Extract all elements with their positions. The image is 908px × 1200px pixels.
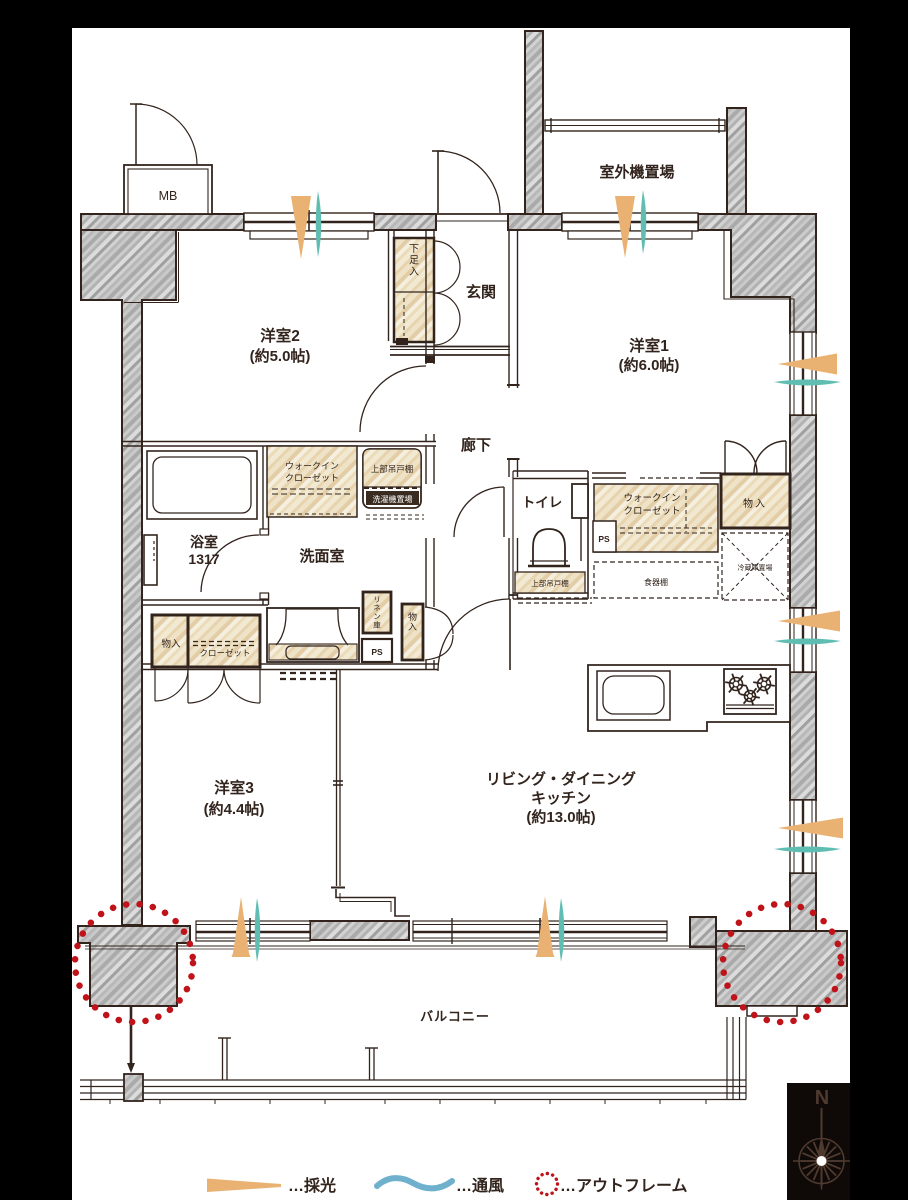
svg-text:…アウトフレーム: …アウトフレーム: [560, 1177, 688, 1195]
svg-text:上部吊戸棚: 上部吊戸棚: [371, 464, 414, 474]
svg-text:クローゼット: クローゼット: [623, 505, 680, 517]
svg-text:洋室1: 洋室1: [629, 336, 669, 355]
svg-text:キッチン: キッチン: [531, 790, 591, 807]
svg-text:上部吊戸棚: 上部吊戸棚: [531, 578, 569, 588]
svg-text:ウォークイン: ウォークイン: [623, 493, 680, 504]
svg-text:(約5.0帖): (約5.0帖): [250, 347, 311, 365]
svg-text:PS: PS: [598, 534, 610, 544]
svg-text:クローゼット: クローゼット: [285, 472, 339, 483]
svg-text:浴室: 浴室: [190, 534, 218, 550]
svg-text:リビング・ダイニング: リビング・ダイニング: [486, 770, 636, 788]
svg-text:食器棚: 食器棚: [644, 577, 668, 587]
svg-text:冷蔵庫置場: 冷蔵庫置場: [738, 563, 773, 572]
svg-text:(約6.0帖): (約6.0帖): [619, 356, 680, 374]
svg-text:1317: 1317: [188, 551, 219, 567]
svg-text:下足入: 下足入: [409, 244, 419, 278]
svg-text:物入: 物入: [408, 611, 417, 632]
svg-text:リネン庫: リネン庫: [373, 595, 381, 630]
svg-text:廊下: 廊下: [461, 436, 491, 454]
svg-text:(約13.0帖): (約13.0帖): [526, 808, 595, 826]
svg-text:MB: MB: [159, 189, 178, 203]
svg-text:洋室2: 洋室2: [260, 326, 300, 345]
svg-text:洗濯機置場: 洗濯機置場: [373, 494, 413, 504]
svg-text:(約4.4帖): (約4.4帖): [204, 800, 265, 818]
svg-text:物入: 物入: [743, 497, 767, 510]
svg-text:バルコニー: バルコニー: [420, 1009, 490, 1024]
svg-text:N: N: [815, 1087, 829, 1109]
svg-text:クローゼット: クローゼット: [199, 648, 250, 658]
svg-text:トイレ: トイレ: [522, 495, 563, 510]
svg-text:玄関: 玄関: [466, 283, 496, 301]
svg-text:物入: 物入: [161, 638, 181, 650]
svg-text:洗面室: 洗面室: [299, 547, 344, 565]
svg-text:室外機置場: 室外機置場: [599, 163, 674, 181]
svg-text:PS: PS: [371, 647, 383, 657]
svg-text:ウォークイン: ウォークイン: [285, 461, 339, 471]
svg-text:洋室3: 洋室3: [214, 778, 254, 797]
svg-text:…採光: …採光: [288, 1176, 336, 1195]
svg-text:…通風: …通風: [456, 1177, 504, 1195]
